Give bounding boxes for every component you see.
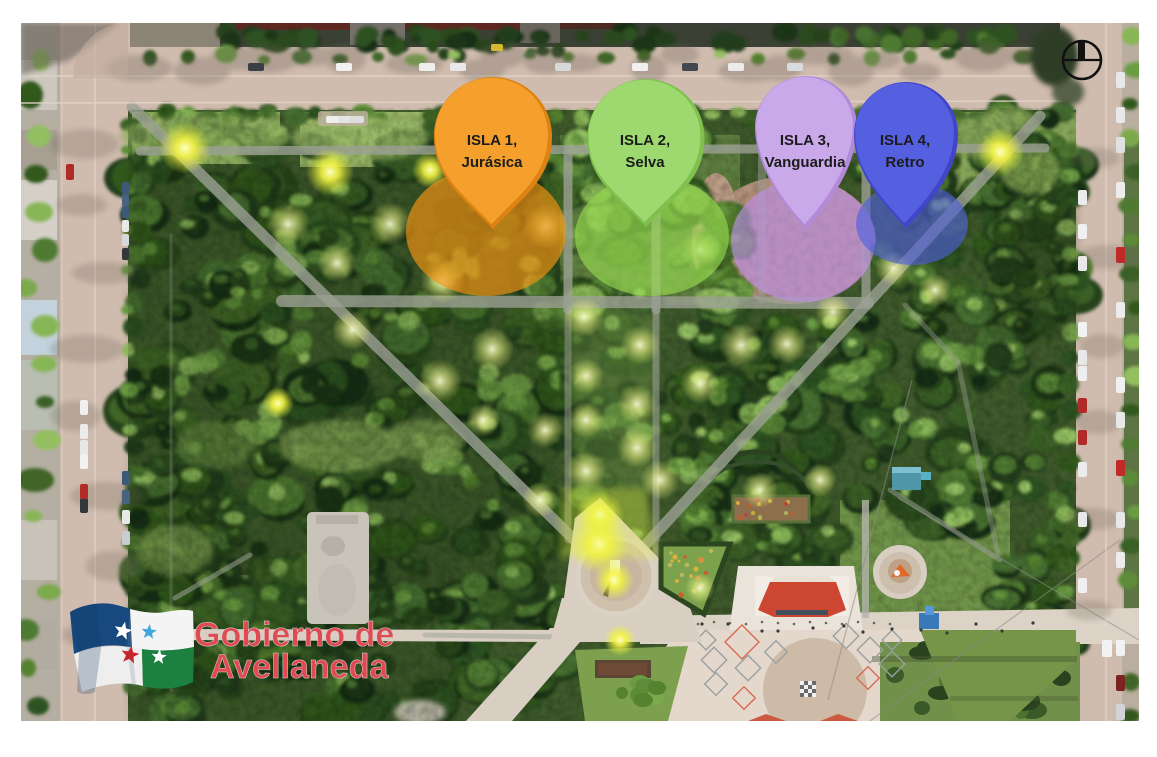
svg-text:Retro: Retro [885, 154, 924, 171]
svg-text:Selva: Selva [625, 154, 665, 171]
svg-text:Jurásica: Jurásica [462, 154, 524, 171]
svg-text:ISLA 4,: ISLA 4, [880, 132, 930, 149]
svg-text:ISLA 3,: ISLA 3, [780, 132, 830, 149]
svg-text:Vanguardia: Vanguardia [765, 154, 847, 171]
svg-text:Avellaneda: Avellaneda [210, 648, 389, 686]
svg-text:ISLA 1,: ISLA 1, [467, 132, 517, 149]
svg-text:ISLA 2,: ISLA 2, [620, 132, 670, 149]
